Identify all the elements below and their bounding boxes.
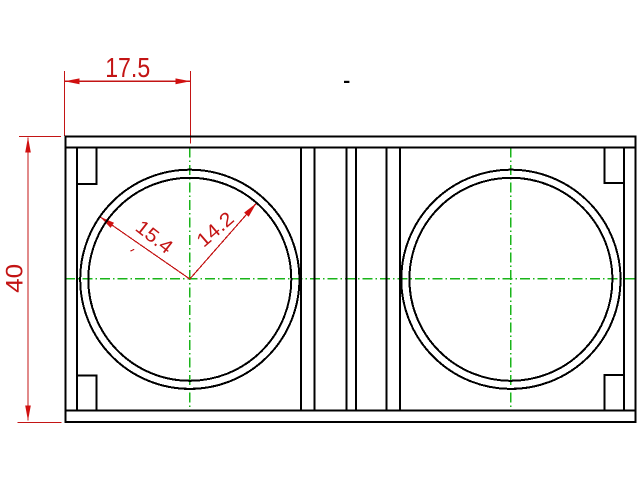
svg-text:17.5: 17.5 (105, 52, 150, 83)
svg-text:40: 40 (2, 264, 29, 293)
